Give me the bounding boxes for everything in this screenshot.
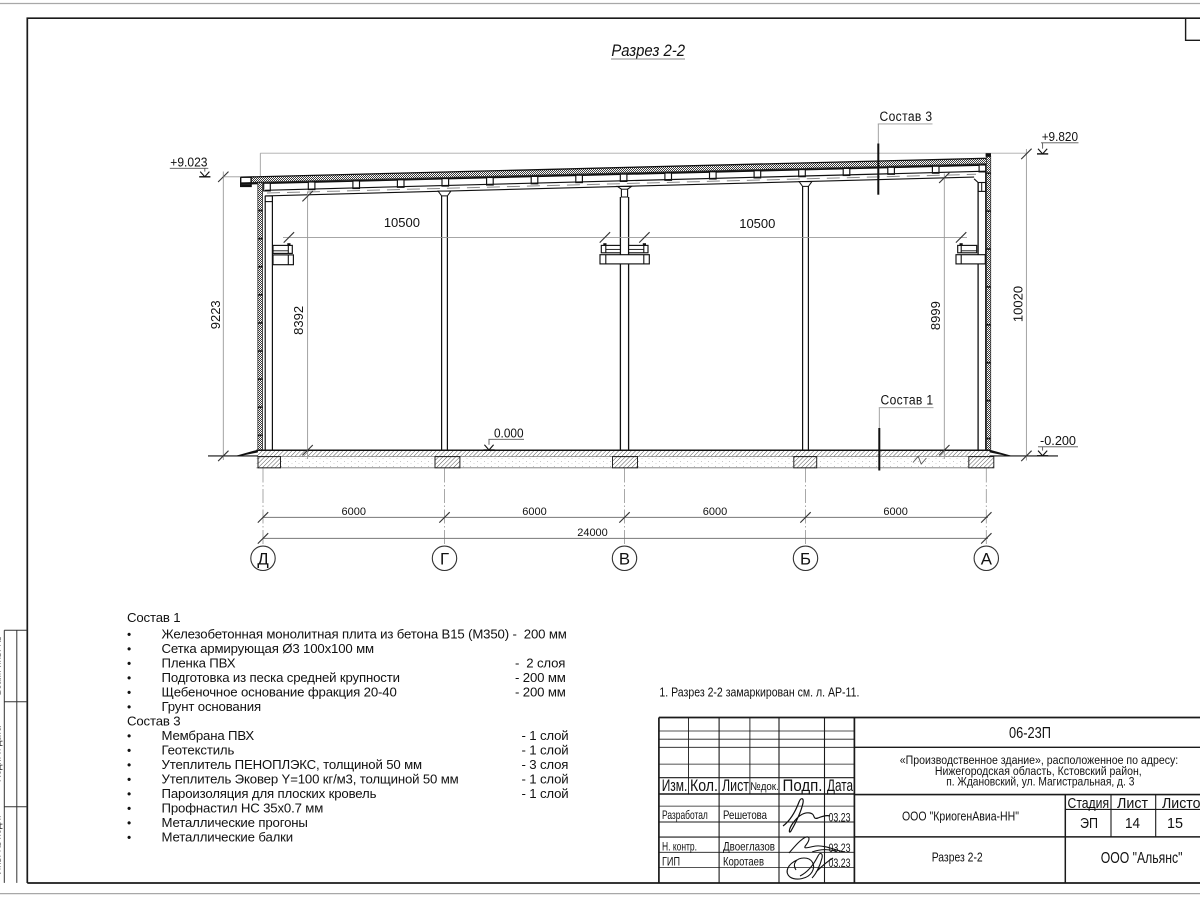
svg-text:- 200 мм: - 200 мм: [515, 670, 566, 685]
svg-text:Коротаев: Коротаев: [723, 855, 764, 869]
svg-text:Кол.: Кол.: [690, 776, 718, 795]
svg-text:•: •: [127, 685, 131, 699]
svg-text:10500: 10500: [384, 215, 420, 230]
svg-text:Утеплитель ПЕНОПЛЭКС, толщиной: Утеплитель ПЕНОПЛЭКС, толщиной 50 мм: [162, 757, 423, 772]
svg-text:10500: 10500: [739, 216, 775, 231]
svg-text:Д: Д: [257, 549, 269, 568]
svg-text:Состав 3: Состав 3: [127, 713, 180, 728]
svg-text:- 2 слоя: - 2 слоя: [515, 655, 565, 670]
svg-text:6000: 6000: [703, 506, 727, 518]
svg-text:Состав 1: Состав 1: [881, 393, 934, 408]
svg-text:Щебеночное основание фракция 2: Щебеночное основание фракция 20-40: [162, 684, 397, 699]
svg-text:•: •: [127, 758, 131, 772]
svg-text:Взам. инв. №: Взам. инв. №: [0, 637, 4, 696]
svg-text:Стадия: Стадия: [1068, 796, 1110, 812]
svg-text:1. Разрез 2-2 замаркирован см.: 1. Разрез 2-2 замаркирован см. л. АР-11.: [659, 684, 859, 699]
svg-text:+9.023: +9.023: [170, 155, 207, 169]
svg-text:Сетка армирующая Ø3 100х100 мм: Сетка армирующая Ø3 100х100 мм: [162, 641, 375, 656]
svg-text:А: А: [981, 549, 993, 568]
svg-text:•: •: [127, 743, 131, 757]
svg-text:Утеплитель Эковер Y=100 кг/м3,: Утеплитель Эковер Y=100 кг/м3, толщиной …: [162, 771, 459, 786]
svg-text:Разрез 2-2: Разрез 2-2: [932, 849, 983, 864]
svg-text:•: •: [127, 787, 131, 801]
svg-text:- 3 слоя: - 3 слоя: [522, 757, 569, 772]
svg-text:Г: Г: [440, 549, 449, 568]
svg-text:15: 15: [1167, 816, 1183, 832]
svg-text:- 1 слой: - 1 слой: [522, 771, 569, 786]
svg-text:Разрез 2-2: Разрез 2-2: [611, 42, 685, 60]
svg-text:№док.: №док.: [750, 781, 779, 793]
svg-text:•: •: [127, 830, 131, 844]
svg-text:•: •: [127, 642, 131, 656]
svg-text:В: В: [619, 549, 630, 568]
svg-text:Подп.: Подп.: [783, 776, 823, 795]
svg-text:9223: 9223: [208, 300, 223, 329]
svg-text:Н. контр.: Н. контр.: [662, 839, 697, 853]
svg-text:•: •: [127, 656, 131, 670]
svg-text:8999: 8999: [928, 301, 943, 330]
svg-text:ООО "КриогенАвиа-НН": ООО "КриогенАвиа-НН": [902, 809, 1019, 824]
svg-text:Профнастил НС 35х0.7 мм: Профнастил НС 35х0.7 мм: [162, 800, 324, 815]
svg-text:•: •: [127, 816, 131, 830]
svg-text:•: •: [127, 801, 131, 815]
svg-text:ООО "Альянс": ООО "Альянс": [1101, 850, 1183, 867]
svg-text:Железобетонная монолитная плит: Железобетонная монолитная плита из бетон…: [162, 626, 509, 641]
svg-text:Состав 1: Состав 1: [127, 610, 180, 625]
svg-text:- 1 слой: - 1 слой: [522, 786, 569, 801]
svg-text:Листов: Листов: [1162, 796, 1200, 812]
svg-text:- 1 слой: - 1 слой: [522, 742, 569, 757]
svg-text:Лист: Лист: [1117, 796, 1148, 812]
svg-text:Подп. и дата: Подп. и дата: [0, 725, 4, 782]
svg-text:п. Ждановский, ул. Магистральн: п. Ждановский, ул. Магистральная, д. 3: [946, 774, 1134, 788]
svg-text:Б: Б: [800, 549, 811, 568]
svg-text:Геотекстиль: Геотекстиль: [162, 742, 235, 757]
svg-text:0.000: 0.000: [494, 426, 524, 440]
svg-text:06-23П: 06-23П: [1009, 725, 1051, 742]
svg-text:Изм.: Изм.: [662, 776, 688, 795]
svg-text:Инв. № подл.: Инв. № подл.: [0, 815, 4, 874]
svg-text:- 1 слой: - 1 слой: [522, 728, 569, 743]
svg-text:•: •: [127, 729, 131, 743]
svg-text:8392: 8392: [291, 306, 306, 335]
svg-text:6000: 6000: [522, 506, 546, 518]
svg-text:•: •: [127, 627, 131, 641]
svg-text:Лист: Лист: [722, 776, 749, 795]
svg-text:Грунт основания: Грунт основания: [162, 699, 261, 714]
svg-text:03.23: 03.23: [829, 813, 851, 825]
svg-text:14: 14: [1125, 816, 1140, 832]
svg-text:Двоеглазов: Двоеглазов: [723, 839, 775, 853]
svg-text:- 200 мм: - 200 мм: [513, 626, 567, 641]
svg-text:•: •: [127, 671, 131, 685]
svg-text:03.23: 03.23: [829, 858, 851, 870]
svg-text:6000: 6000: [342, 506, 366, 518]
svg-text:Металлические балки: Металлические балки: [162, 829, 294, 844]
svg-text:24000: 24000: [577, 527, 608, 539]
svg-text:+9.820: +9.820: [1042, 130, 1078, 144]
svg-text:Мембрана ПВХ: Мембрана ПВХ: [162, 728, 255, 743]
svg-text:Разработал: Разработал: [662, 808, 708, 822]
svg-text:Решетова: Решетова: [723, 808, 767, 822]
svg-text:Пленка ПВХ: Пленка ПВХ: [162, 655, 236, 670]
svg-text:Состав 3: Состав 3: [880, 109, 933, 124]
svg-text:•: •: [127, 700, 131, 714]
svg-text:Дата: Дата: [827, 776, 853, 795]
svg-text:Пароизоляция для плоских крове: Пароизоляция для плоских кровель: [162, 786, 377, 801]
svg-text:- 200 мм: - 200 мм: [515, 684, 566, 699]
svg-text:6000: 6000: [883, 506, 907, 518]
svg-text:10020: 10020: [1011, 286, 1026, 322]
svg-text:Подготовка из песка средней кр: Подготовка из песка средней крупности: [162, 670, 400, 685]
svg-text:-0.200: -0.200: [1040, 434, 1076, 448]
svg-text:•: •: [127, 772, 131, 786]
svg-text:ЭП: ЭП: [1080, 816, 1098, 832]
svg-text:ГИП: ГИП: [662, 855, 680, 869]
svg-text:Металлические прогоны: Металлические прогоны: [162, 815, 308, 830]
